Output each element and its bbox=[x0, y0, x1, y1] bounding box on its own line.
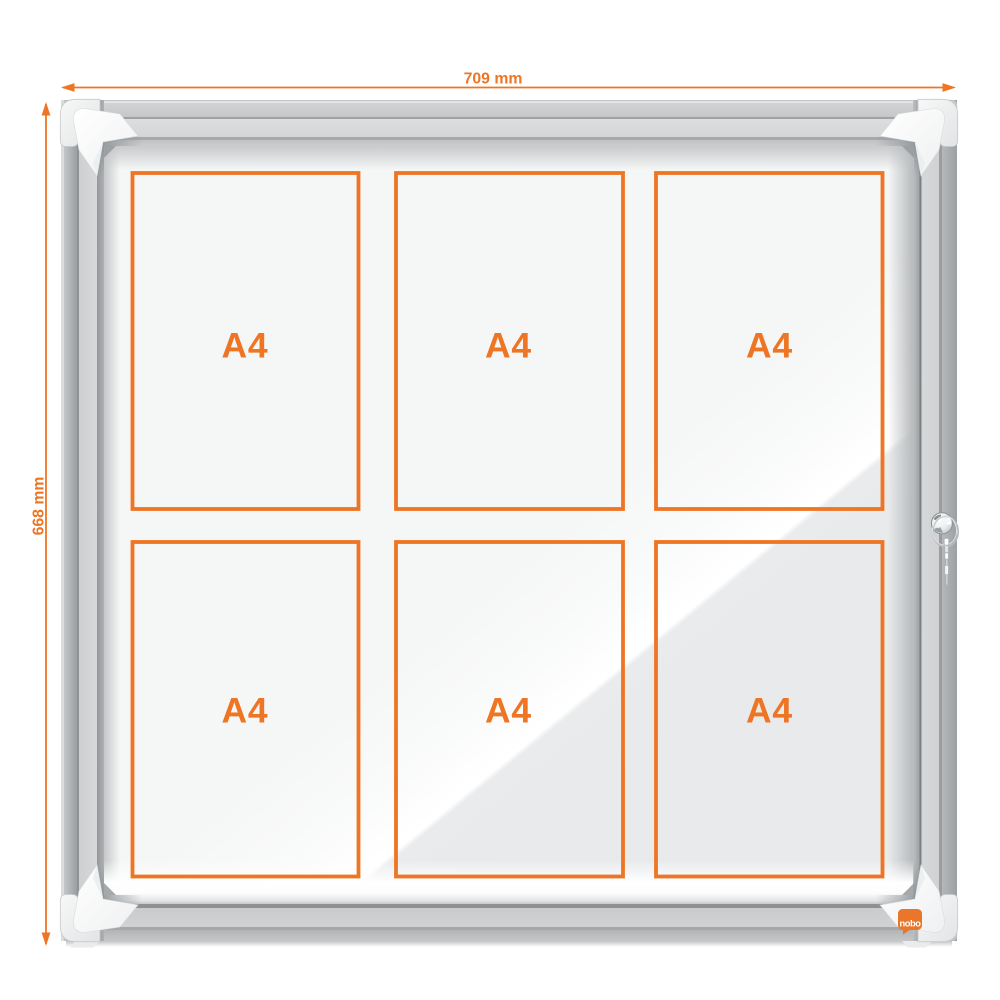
svg-text:A4: A4 bbox=[485, 326, 532, 366]
svg-text:A4: A4 bbox=[222, 691, 269, 731]
svg-text:A4: A4 bbox=[222, 326, 269, 366]
svg-text:A4: A4 bbox=[485, 691, 532, 731]
svg-text:nobo: nobo bbox=[900, 919, 922, 929]
svg-text:A4: A4 bbox=[746, 691, 793, 731]
svg-text:668 mm: 668 mm bbox=[31, 477, 48, 536]
svg-text:709 mm: 709 mm bbox=[464, 71, 523, 88]
svg-text:A4: A4 bbox=[746, 326, 793, 366]
